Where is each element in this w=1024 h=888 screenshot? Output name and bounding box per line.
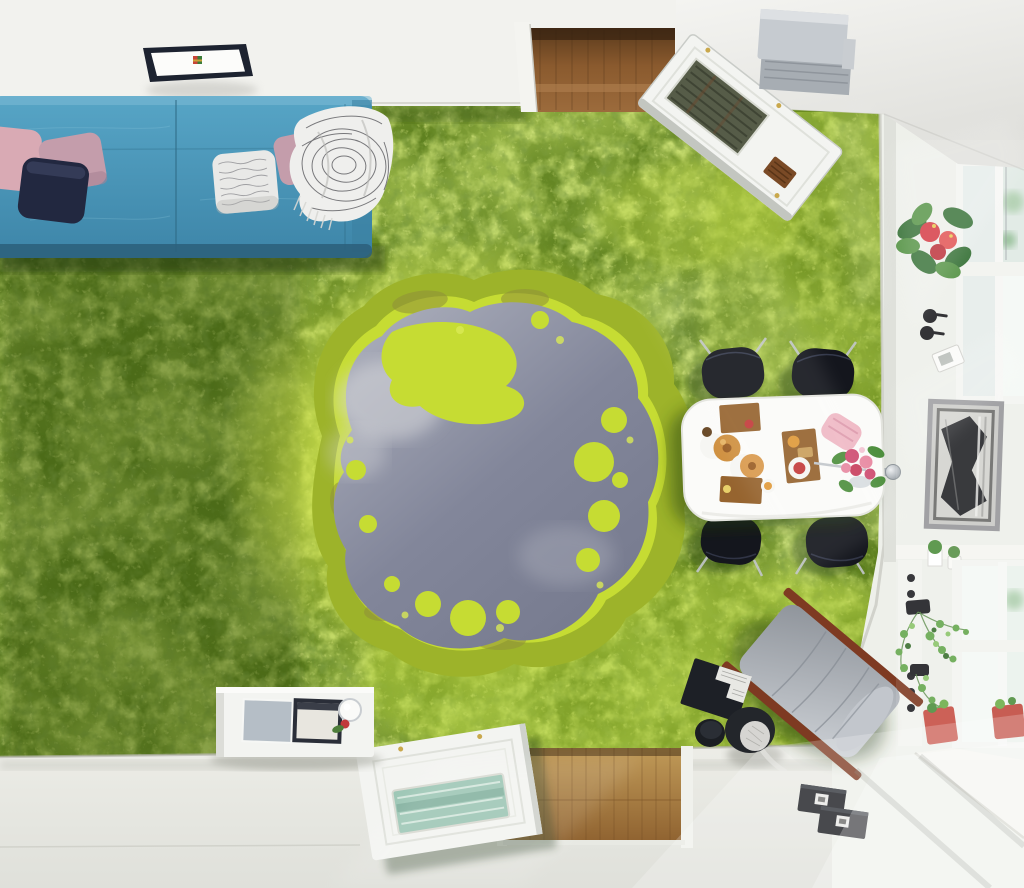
doorway-lintel-shadow — [525, 28, 675, 40]
sideboard — [210, 687, 382, 770]
ac-wall-unit — [755, 9, 857, 96]
media-screens — [242, 698, 342, 744]
ceiling-lamp — [143, 44, 258, 99]
room-scene — [0, 0, 1024, 888]
sideboard-side — [216, 687, 224, 757]
stool-top — [700, 721, 722, 739]
sofa — [0, 96, 393, 258]
sofa-front-shadow — [0, 244, 372, 258]
pillow-navy — [16, 156, 90, 225]
stool-small — [695, 719, 725, 747]
lamp-logo — [193, 56, 202, 64]
unit-side-tab — [842, 39, 856, 70]
sofa-back-edge — [0, 96, 372, 105]
screenshot-root — [0, 0, 1024, 888]
sideboard-top-edge — [216, 687, 374, 693]
wall-shadow-on-forest — [380, 106, 526, 122]
pillow-pattern — [212, 149, 280, 214]
